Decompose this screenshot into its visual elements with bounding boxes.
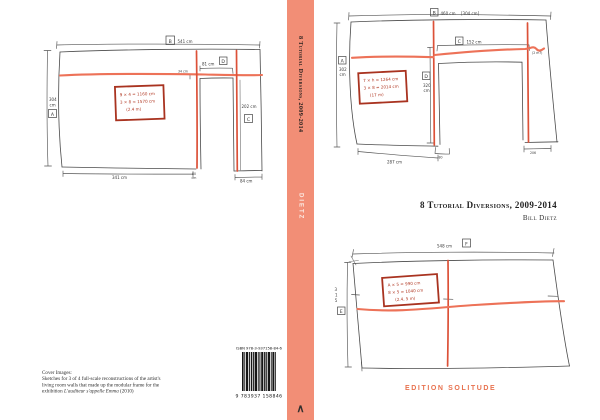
wall2-mid-letter: D: [424, 74, 428, 80]
notes-line-4-prefix: exhibition: [42, 389, 64, 395]
wall1-pillar-bottom: [234, 171, 262, 172]
wall2-top-dim-alt: [304 cm]: [461, 11, 480, 16]
wall1-pillar-letter: C: [247, 117, 250, 123]
notes-line-3: living room walls that made up the modul…: [42, 381, 160, 388]
wall2-mid-unit: cm: [424, 88, 430, 93]
wall3-bottom-edge: [362, 366, 570, 368]
wall1-pillar-dim: 202 cm: [242, 104, 257, 109]
wall1-door-letter: D: [221, 59, 225, 65]
cover-author: Bill Dietz: [523, 214, 557, 222]
wall2-top-edge: [351, 20, 546, 22]
notes-heading: Cover Images:: [42, 370, 72, 376]
wall2-red-horizontal-left: [352, 57, 434, 58]
wall1-top-edge: [60, 49, 260, 52]
wall3-left-edge: [353, 264, 362, 369]
wall3-left-letter: E: [340, 309, 343, 315]
publisher-logotype: EDITION SOLITUDE: [405, 385, 496, 392]
wall1-redbox-line3: (2.4 m): [126, 106, 142, 112]
wall3-top-letter: F: [465, 241, 468, 247]
wall1-red-annotation-box: 9 × 4 = 1160 cm 3 × 8 = 1570 cm (2.4 m): [115, 85, 165, 120]
back-cover: B 541 cm 304 cm A 81 cm D 34 cm 202 cm C…: [0, 0, 287, 420]
cover-notes: Cover Images: Sketches for 3 of 4 full-s…: [40, 366, 240, 400]
wall3-left-dim-digit3: 5: [335, 298, 338, 303]
wall-sketch-1: B 541 cm 304 cm A 81 cm D 34 cm 202 cm C…: [30, 28, 275, 188]
spine-title: 8 Tutorial Diversions, 2009-2014: [297, 36, 304, 132]
wall1-left-letter: A: [51, 112, 55, 118]
dim-line-bottom-left: [63, 171, 193, 177]
wall1-left-unit: cm: [50, 103, 56, 108]
dim-bracket-bottom-mid: [435, 148, 450, 155]
wall2-opening-left: [439, 64, 441, 145]
wall1-bottom-left-dim: 341 cm: [112, 175, 127, 180]
wall1-red-vertical-1: [197, 51, 198, 168]
wall2-top-letter: B: [433, 11, 436, 17]
wall2-bottom-mid-dim: 80: [439, 156, 443, 160]
wall2-top-dim: 460 cm: [441, 11, 456, 16]
wall-sketch-3: 548 cm F 3 1 5 E A × 5 = 990 cm 8 × 5 = …: [330, 235, 580, 380]
dim-line-left: [44, 51, 52, 167]
wall2-left-edge: [350, 22, 357, 144]
wall2-left-unit: cm: [340, 72, 346, 77]
dim-line-left: [334, 23, 340, 147]
spine-author: DIETZ: [298, 193, 304, 220]
wall2-red-vertical-center: [434, 22, 435, 146]
wall1-pillar-inner: [240, 80, 241, 170]
wall1-red-horizontal: [60, 74, 262, 76]
wall3-top-dim: 548 cm: [437, 244, 452, 249]
wall2-redbox-line3: (17 m): [370, 92, 384, 98]
wall1-top-dim: 541 cm: [178, 39, 193, 44]
wall1-door-right: [233, 78, 234, 171]
wall3-top-edge: [353, 260, 553, 264]
isbn-barcode: ISBN 978-3-937158-84-6 9 783937 158846: [236, 344, 282, 402]
wall1-right-edge: [260, 50, 262, 172]
wall2-left-letter: A: [341, 59, 345, 65]
dim-line-door: [200, 66, 233, 74]
isbn-text: ISBN 978-3-937158-84-6: [236, 347, 282, 351]
wall2-right-edge: [546, 20, 557, 142]
notes-line-2: Sketches for 3 of 4 full-scale reconstru…: [42, 375, 160, 382]
wall3-left-dim-digit1: 3: [335, 287, 338, 292]
dim-line-bottom-right: [524, 146, 551, 153]
wall2-red-vertical-right: [528, 23, 529, 142]
wall1-bottom-edge: [62, 167, 196, 169]
dim-line-left: [345, 262, 352, 367]
wall1-top-letter: B: [169, 39, 172, 45]
cover-title: 8 Tutorial Diversions, 2009-2014: [420, 200, 557, 210]
wall3-left-dim-digit2: 1: [335, 293, 338, 298]
notes-line-4-suffix: (2010): [119, 388, 134, 395]
wall2-opening-header: [439, 62, 523, 64]
wall2-bottom-left-edge: [357, 144, 438, 146]
wall2-right-small-dim: (2 m?): [532, 51, 542, 55]
wall2-opening-letter: C: [458, 39, 461, 45]
wall2-bottom-right-dim: 206: [530, 151, 536, 155]
front-cover: B 460 cm [304 cm] A 302 cm C 152 cm (2 m…: [314, 0, 600, 420]
wall2-bottom-right-edge: [525, 142, 558, 143]
barcode-bars: [242, 352, 276, 391]
book-cover-spread: B 541 cm 304 cm A 81 cm D 34 cm 202 cm C…: [0, 0, 600, 420]
edition-solitude-logo-icon: ∧: [287, 404, 314, 415]
notes-line-4: exhibition L'auditeur s'appelle Emma (20…: [42, 388, 134, 395]
wall2-opening-dim: 152 cm: [467, 40, 482, 45]
wall2-bottom-left-dim: 287 cm: [387, 160, 402, 165]
wall1-door-header: [200, 78, 233, 79]
wall3-red-annotation-box: A × 5 = 990 cm 8 × 5 = 1040 cm (2.4, 5 m…: [382, 274, 439, 306]
wall1-door-small-dim: 34 cm: [178, 70, 188, 74]
wall1-bottom-door-unit: cm: [192, 176, 197, 180]
spine: 8 Tutorial Diversions, 2009-2014 DIETZ ∧: [287, 0, 314, 420]
wall1-door-dim: 81 cm: [202, 62, 215, 67]
wall1-left-edge: [59, 52, 62, 167]
wall2-red-annotation-box: 7 × h = 1264 cm 3 × 8 = 2014 cm (17 m): [358, 71, 407, 104]
wall1-door-left: [200, 79, 201, 170]
wall-sketch-2: B 460 cm [304 cm] A 302 cm C 152 cm (2 m…: [330, 0, 565, 175]
wall1-bottom-right-dim: 84 cm: [240, 179, 253, 184]
wall1-left-dim: 304: [49, 97, 57, 102]
ean-digits: 9 783937 158846: [236, 394, 283, 400]
wall2-opening-right: [522, 62, 523, 140]
dim-line-top: [57, 42, 261, 49]
wall3-red-vertical: [448, 261, 449, 367]
wall3-right-edge: [553, 260, 570, 366]
notes-line-4-title: L'auditeur s'appelle Emma: [63, 389, 119, 395]
wall1-red-vertical-2: [237, 51, 238, 172]
dim-line-top: [352, 249, 554, 258]
